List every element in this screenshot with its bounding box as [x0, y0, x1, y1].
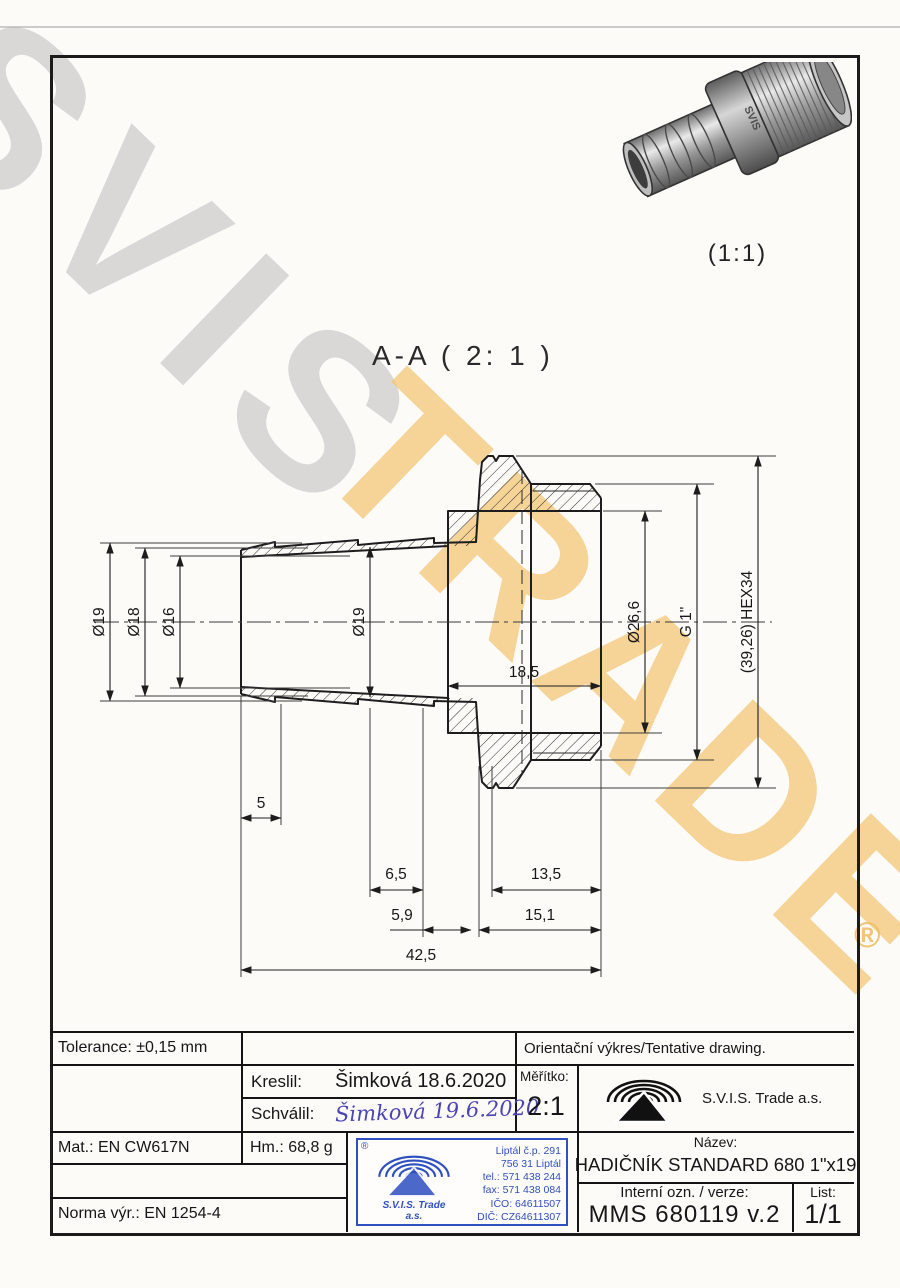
dim-dia19-bore: Ø19 [351, 607, 368, 636]
render-scale-label: (1:1) [630, 240, 845, 268]
technical-drawing-page: SVIS TRADE ® SVIS [0, 0, 900, 1288]
dimension-lines [110, 456, 758, 970]
interni-label: Interní ozn. / verze: [577, 1184, 792, 1200]
meritko-label: Měřítko: [520, 1069, 569, 1084]
titleblock-line [50, 1031, 854, 1033]
dim-13-5: 13,5 [531, 866, 561, 883]
stamp-address1: Liptál č.p. 291 [477, 1145, 561, 1158]
stamp-logo [366, 1148, 462, 1200]
dim-6-5: 6,5 [385, 866, 407, 883]
dim-dia26-6: Ø26,6 [626, 601, 643, 643]
kreslil-value: Šimková 18.6.2020 [335, 1070, 506, 1093]
dim-5: 5 [257, 795, 266, 812]
dim-42-5: 42,5 [406, 947, 436, 964]
stamp-fax: fax: 571 438 084 [477, 1184, 561, 1197]
titleblock-line [50, 1197, 346, 1199]
titleblock-line [346, 1131, 348, 1232]
dim-dia16: Ø16 [161, 607, 178, 636]
stamp-ico: IČO: 64611507 [477, 1198, 561, 1211]
schvalil-label: Schválil: [251, 1104, 314, 1124]
company-stamp: ® S.V.I.S. Trade a.s. Liptál č.p. 291 75… [356, 1138, 568, 1226]
titleblock-line [50, 1163, 346, 1165]
titleblock-line [50, 1064, 854, 1066]
dim-18-5: 18,5 [509, 664, 539, 681]
scan-edge [0, 26, 900, 28]
company-name: S.V.I.S. Trade a.s. [702, 1090, 822, 1107]
section-title: A-A ( 2: 1 ) [372, 340, 554, 372]
stamp-company-line2: a.s. [406, 1211, 423, 1222]
nazev-value: HADIČNÍK STANDARD 680 1"x19 [577, 1151, 854, 1179]
meritko-value: 2:1 [515, 1086, 577, 1126]
fitting-3d-render: SVIS [622, 62, 852, 242]
stamp-address2: 756 31 Liptál [477, 1158, 561, 1171]
tolerance-text: Tolerance: ±0,15 mm [58, 1039, 207, 1057]
nazev-label: Název: [577, 1133, 854, 1151]
stamp-company-line1: S.V.I.S. Trade [383, 1200, 446, 1211]
stamp-tel: tel.: 571 438 244 [477, 1171, 561, 1184]
stamp-dic: DIČ: CZ64611307 [477, 1211, 561, 1224]
interni-value: MMS 680119 v.2 [577, 1200, 792, 1230]
titleblock-line [241, 1031, 243, 1163]
company-logo [598, 1072, 690, 1126]
dim-5-9: 5,9 [391, 907, 413, 924]
extension-lines [100, 456, 776, 977]
dim-thread-g1: G 1" [678, 607, 695, 638]
dim-hex34: (39,26) HEX34 [739, 570, 756, 673]
kreslil-label: Kreslil: [251, 1072, 302, 1092]
material-text: Mat.: EN CW617N [58, 1139, 190, 1157]
orientation-note: Orientační výkres/Tentative drawing. [524, 1040, 766, 1057]
dim-15-1: 15,1 [525, 907, 555, 924]
dim-dia18: Ø18 [126, 607, 143, 636]
norm-text: Norma výr.: EN 1254-4 [58, 1205, 221, 1223]
list-value: 1/1 [792, 1198, 854, 1230]
section-view-drawing: Ø19 Ø18 Ø16 Ø19 Ø26,6 G 1" (39,26) HEX34… [50, 430, 790, 1010]
weight-text: Hm.: 68,8 g [250, 1139, 333, 1157]
dim-dia19-left: Ø19 [91, 607, 108, 636]
